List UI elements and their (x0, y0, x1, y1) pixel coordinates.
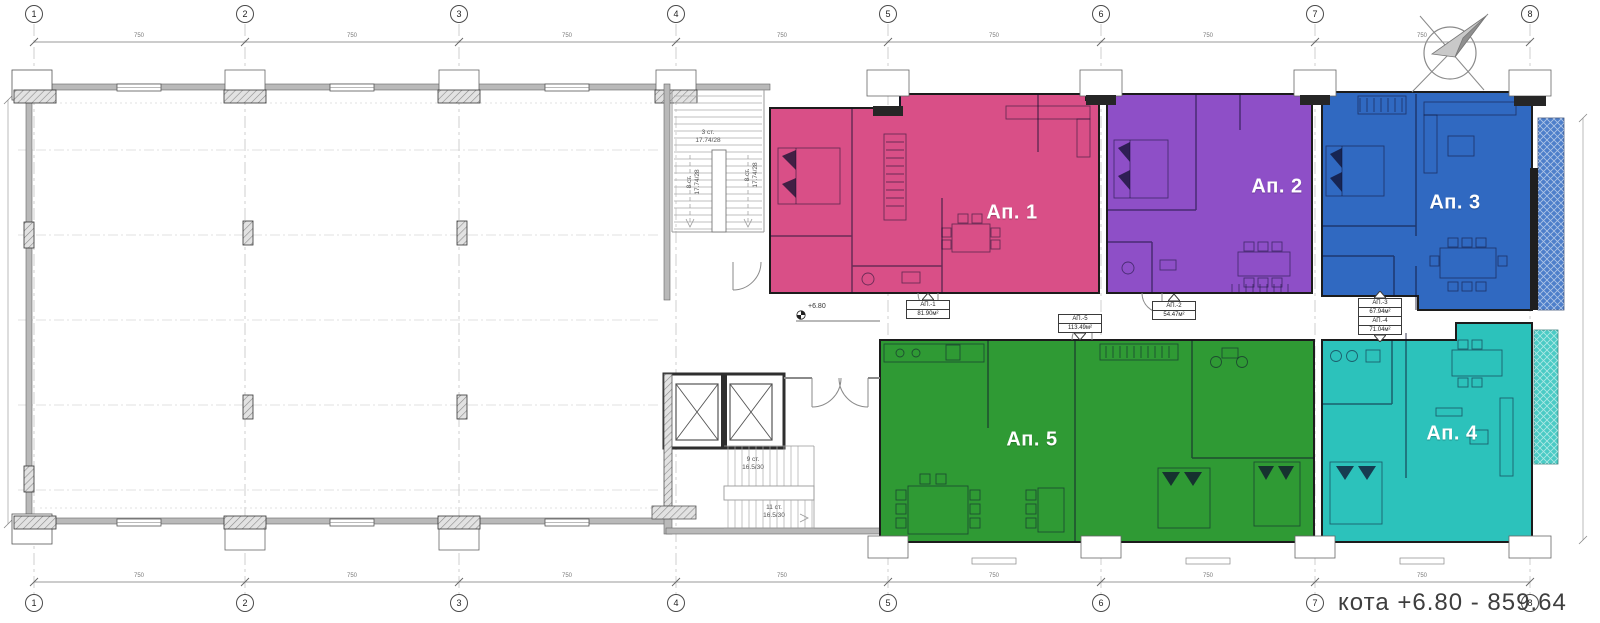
stair-core (664, 84, 764, 300)
ap1-tag-area: 81.90м² (907, 310, 949, 318)
ap4-tag-area: 71.04м² (1359, 326, 1401, 334)
ap5-tag-area: 113.49м² (1059, 324, 1101, 332)
ap1-tag-name: АП.-1 (907, 301, 949, 310)
bay-dimension: 750 (777, 573, 787, 579)
apartment-ap2-label: Ап. 2 (1251, 176, 1302, 199)
bay-dimension: 750 (989, 33, 999, 39)
grid-bubble-top-7: 7 (1306, 5, 1324, 23)
bay-dimension: 750 (1203, 573, 1213, 579)
bay-dimension: 750 (562, 573, 572, 579)
north-arrow-icon (1412, 14, 1488, 92)
bay-dimension: 750 (1417, 33, 1427, 39)
apartment-ap3-label: Ап. 3 (1429, 192, 1480, 215)
bay-dimension: 750 (1203, 33, 1213, 39)
stair-flight11-label: 11 ст.16.5/30 (763, 504, 785, 520)
bay-dimension: 750 (562, 33, 572, 39)
bay-dimension: 750 (989, 573, 999, 579)
tag-arrow-up-icon (922, 293, 934, 300)
ap5-tag-name: АП.-5 (1059, 315, 1101, 324)
bay-dimension: 750 (347, 573, 357, 579)
level-marker-symbol (796, 311, 880, 321)
tag-arrow-up-icon (1374, 291, 1386, 298)
bay-dimension: 750 (1417, 573, 1427, 579)
apartment-ap1-region[interactable] (770, 94, 1099, 293)
stair-flight8-left-label: 8 ст.17.74/28 (686, 169, 702, 194)
stair-flight3-label: 3 ст.17.74/28 (695, 129, 720, 145)
stair-flight9-label: 9 ст.16.5/30 (742, 456, 764, 472)
bay-dimension: 750 (777, 33, 787, 39)
grid-bubble-bottom-6: 6 (1092, 594, 1110, 612)
grid-bubble-top-8: 8 (1521, 5, 1539, 23)
grid-bubble-bottom-3: 3 (450, 594, 468, 612)
ap3-area-tag: АП.-3 67.94м² (1358, 291, 1402, 317)
ap5-area-tag: АП.-5 113.49м² (1058, 314, 1102, 340)
ap3-tag-area: 67.94м² (1359, 308, 1401, 316)
grid-bubble-top-1: 1 (25, 5, 43, 23)
ap2-area-tag: АП.-2 54.47м² (1152, 294, 1196, 320)
floor-plan-canvas: 1 2 3 4 5 6 7 8 1 2 3 4 5 6 7 8 750 750 … (0, 0, 1600, 623)
grid-bubble-bottom-2: 2 (236, 594, 254, 612)
apartment-ap4-label: Ап. 4 (1426, 423, 1477, 446)
balconies (1530, 118, 1564, 464)
hall-axis-lines (18, 103, 660, 508)
tag-arrow-down-icon (1374, 335, 1386, 342)
ap2-tag-area: 54.47м² (1153, 311, 1195, 319)
apartment-ap3-region[interactable] (1322, 92, 1532, 310)
ap1-area-tag: АП.-1 81.90м² (906, 293, 950, 319)
grid-bubble-bottom-7: 7 (1306, 594, 1324, 612)
level-marker-label: +6.80 (808, 303, 826, 310)
tag-arrow-up-icon (1168, 294, 1180, 301)
ap3-tag-name: АП.-3 (1359, 299, 1401, 308)
ap4-area-tag: АП.-4 71.04м² (1358, 316, 1402, 342)
bay-dimension: 750 (347, 33, 357, 39)
grid-bubble-top-5: 5 (879, 5, 897, 23)
hall-columns (14, 70, 697, 550)
grid-bubble-bottom-1: 1 (25, 594, 43, 612)
apartment-ap5-region[interactable] (880, 340, 1314, 542)
ap4-tag-name: АП.-4 (1359, 317, 1401, 326)
grid-bubble-bottom-5: 5 (879, 594, 897, 612)
apartment-ap5-label: Ап. 5 (1006, 429, 1057, 452)
bay-dimension: 750 (134, 33, 144, 39)
ap2-tag-name: АП.-2 (1153, 302, 1195, 311)
plan-caption: кота +6.80 - 859.64 (1338, 589, 1567, 617)
apartment-ap1-label: Ап. 1 (986, 202, 1037, 225)
grid-bubble-top-3: 3 (450, 5, 468, 23)
tag-arrow-down-icon (1074, 333, 1086, 340)
hall-walls (12, 70, 880, 544)
grid-bubble-top-2: 2 (236, 5, 254, 23)
grid-bubble-bottom-4: 4 (667, 594, 685, 612)
grid-bubble-top-6: 6 (1092, 5, 1110, 23)
stair-flight8-right-label: 8 ст.17.74/28 (744, 162, 760, 187)
bay-dimension: 750 (134, 573, 144, 579)
grid-bubble-top-4: 4 (667, 5, 685, 23)
